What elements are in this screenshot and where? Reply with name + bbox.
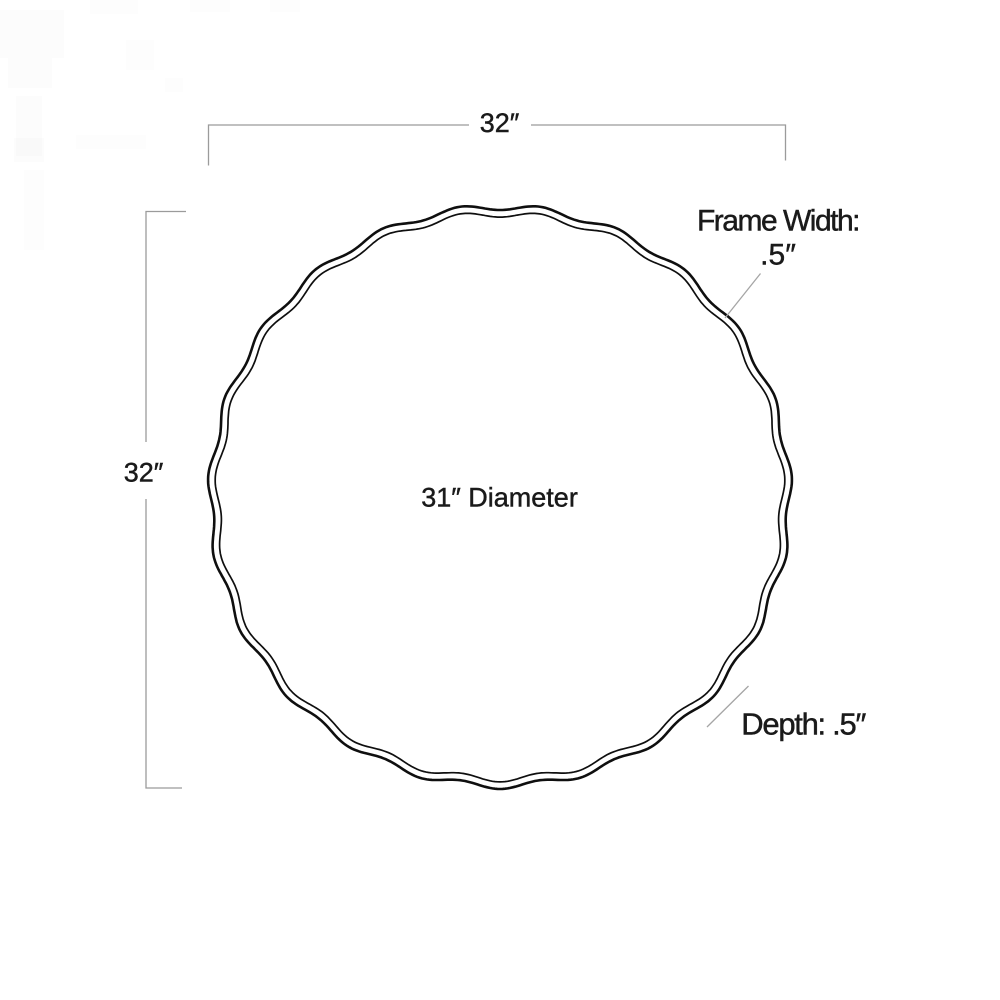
svg-text:32″: 32″ [124,458,164,488]
svg-text:31″ Diameter: 31″ Diameter [421,483,578,513]
svg-text:32″: 32″ [480,108,520,138]
svg-text:.5″: .5″ [760,238,796,271]
svg-text:Depth: .5″: Depth: .5″ [741,706,866,741]
svg-text:Frame Width:: Frame Width: [697,204,859,237]
